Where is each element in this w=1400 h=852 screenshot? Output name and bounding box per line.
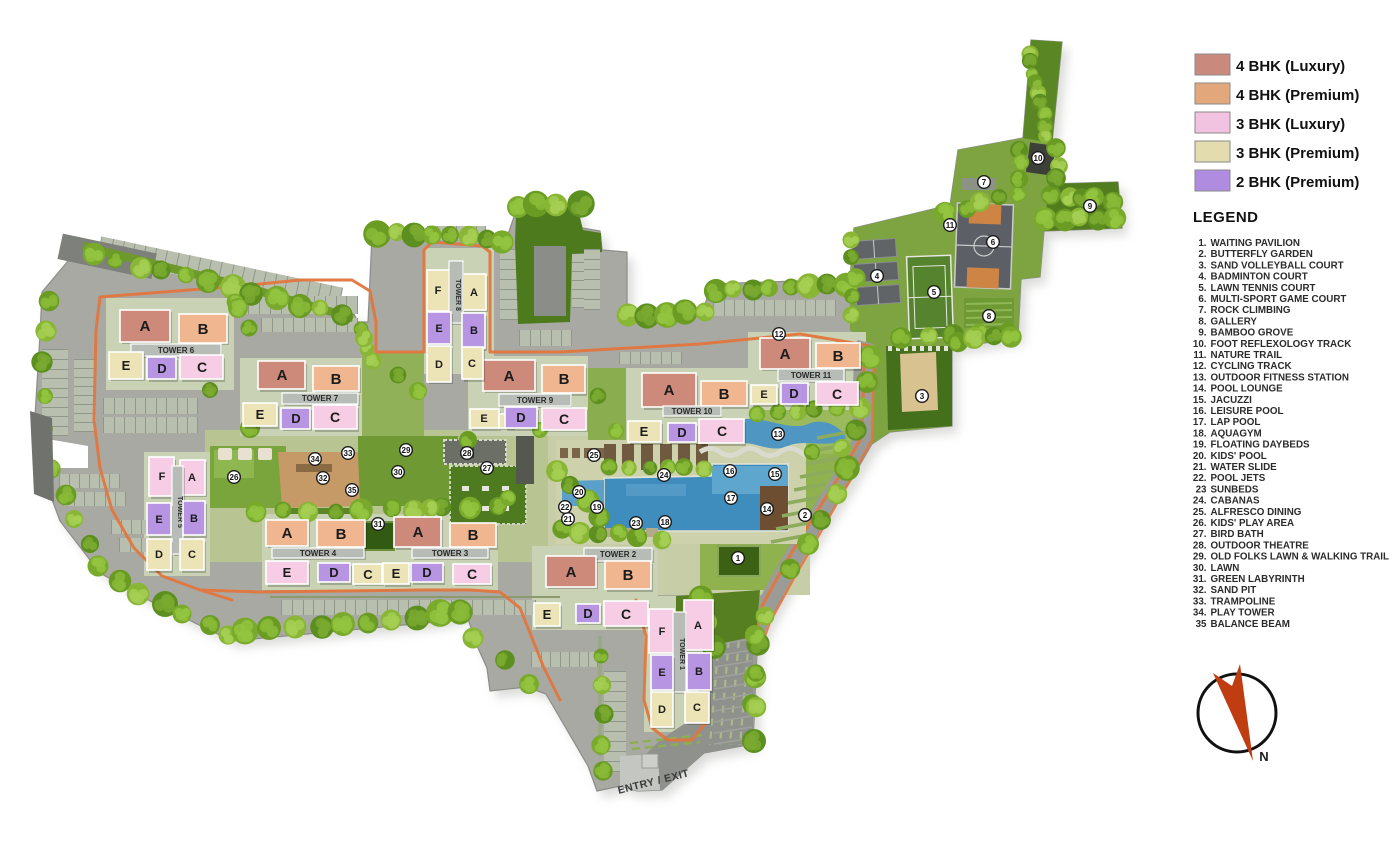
svg-text:D: D xyxy=(516,410,525,425)
svg-text:23: 23 xyxy=(632,519,641,528)
svg-text:B: B xyxy=(470,325,478,337)
svg-text:D: D xyxy=(329,565,338,580)
svg-text:PLAY TOWER: PLAY TOWER xyxy=(1211,608,1275,619)
svg-text:7: 7 xyxy=(982,178,987,187)
svg-text:A: A xyxy=(780,346,791,363)
svg-text:22: 22 xyxy=(561,503,570,512)
svg-text:8: 8 xyxy=(987,312,992,321)
svg-text:E: E xyxy=(256,407,265,422)
svg-text:B: B xyxy=(190,513,198,525)
svg-text:TOWER 3: TOWER 3 xyxy=(432,549,469,558)
svg-text:24.: 24. xyxy=(1193,496,1207,507)
svg-text:NATURE TRAIL: NATURE TRAIL xyxy=(1211,350,1283,361)
svg-text:B: B xyxy=(198,321,209,338)
svg-text:20.: 20. xyxy=(1193,451,1207,462)
svg-text:31.: 31. xyxy=(1193,574,1207,585)
svg-text:3 BHK (Premium): 3 BHK (Premium) xyxy=(1236,145,1359,162)
svg-text:24: 24 xyxy=(660,471,669,480)
svg-text:TRAMPOLINE: TRAMPOLINE xyxy=(1211,596,1276,607)
svg-text:1.: 1. xyxy=(1198,238,1206,249)
svg-text:E: E xyxy=(640,424,649,439)
svg-text:3 BHK (Luxury): 3 BHK (Luxury) xyxy=(1236,116,1345,133)
svg-text:SAND PIT: SAND PIT xyxy=(1211,585,1257,596)
svg-text:A: A xyxy=(566,564,577,581)
svg-text:34.: 34. xyxy=(1193,608,1207,619)
svg-text:9.: 9. xyxy=(1198,328,1206,339)
svg-text:KIDS' POOL: KIDS' POOL xyxy=(1211,451,1267,462)
svg-text:POOL LOUNGE: POOL LOUNGE xyxy=(1211,384,1284,395)
svg-text:25: 25 xyxy=(590,451,599,460)
svg-text:E: E xyxy=(155,514,162,526)
svg-text:32: 32 xyxy=(319,474,328,483)
svg-text:33: 33 xyxy=(344,449,353,458)
svg-text:E: E xyxy=(122,358,131,373)
svg-text:B: B xyxy=(468,527,479,544)
svg-text:12: 12 xyxy=(775,330,784,339)
svg-text:2.: 2. xyxy=(1198,249,1206,260)
svg-text:ALFRESCO DINING: ALFRESCO DINING xyxy=(1211,507,1302,518)
svg-text:21.: 21. xyxy=(1193,462,1207,473)
svg-text:CABANAS: CABANAS xyxy=(1211,496,1260,507)
svg-text:20: 20 xyxy=(575,488,584,497)
svg-text:8.: 8. xyxy=(1198,316,1206,327)
svg-text:E: E xyxy=(392,566,401,581)
svg-text:TOWER 1: TOWER 1 xyxy=(678,638,685,670)
svg-text:9: 9 xyxy=(1088,202,1093,211)
svg-text:A: A xyxy=(470,287,478,299)
svg-text:D: D xyxy=(789,386,798,401)
svg-text:15.: 15. xyxy=(1193,395,1207,406)
svg-text:11.: 11. xyxy=(1193,350,1206,361)
svg-text:13: 13 xyxy=(774,430,783,439)
svg-text:D: D xyxy=(677,425,686,440)
svg-text:D: D xyxy=(157,361,166,376)
svg-text:35: 35 xyxy=(348,486,357,495)
svg-text:ROCK CLIMBING: ROCK CLIMBING xyxy=(1211,305,1291,316)
svg-text:D: D xyxy=(155,549,163,561)
svg-text:23: 23 xyxy=(1196,484,1207,495)
svg-text:E: E xyxy=(283,565,292,580)
svg-text:F: F xyxy=(659,626,666,638)
svg-text:C: C xyxy=(717,423,727,439)
svg-text:MULTI-SPORT GAME COURT: MULTI-SPORT GAME COURT xyxy=(1211,294,1347,305)
svg-text:C: C xyxy=(832,386,842,402)
svg-text:OUTDOOR THEATRE: OUTDOOR THEATRE xyxy=(1211,540,1310,551)
svg-text:34: 34 xyxy=(311,455,320,464)
svg-text:TOWER 10: TOWER 10 xyxy=(672,407,713,416)
svg-text:TOWER 7: TOWER 7 xyxy=(302,394,339,403)
svg-text:28.: 28. xyxy=(1193,540,1207,551)
svg-text:GREEN LABYRINTH: GREEN LABYRINTH xyxy=(1211,574,1305,585)
svg-text:33.: 33. xyxy=(1193,596,1207,607)
svg-text:A: A xyxy=(188,472,196,484)
svg-text:12.: 12. xyxy=(1193,361,1207,372)
svg-text:D: D xyxy=(658,704,666,716)
svg-text:B: B xyxy=(559,371,570,388)
svg-text:11: 11 xyxy=(946,221,955,230)
svg-text:D: D xyxy=(422,565,431,580)
svg-text:KIDS' PLAY AREA: KIDS' PLAY AREA xyxy=(1211,518,1295,529)
svg-text:C: C xyxy=(693,702,701,714)
svg-text:WATER SLIDE: WATER SLIDE xyxy=(1211,462,1278,473)
svg-text:BIRD BATH: BIRD BATH xyxy=(1211,529,1264,540)
svg-text:F: F xyxy=(159,471,166,483)
svg-text:N: N xyxy=(1259,749,1268,764)
svg-text:SAND VOLLEYBALL COURT: SAND VOLLEYBALL COURT xyxy=(1211,260,1344,271)
svg-text:B: B xyxy=(833,348,844,365)
svg-text:1: 1 xyxy=(736,554,741,563)
svg-text:LAWN: LAWN xyxy=(1211,563,1240,574)
svg-text:19.: 19. xyxy=(1193,440,1207,451)
svg-text:30.: 30. xyxy=(1193,563,1207,574)
svg-text:FLOATING DAYBEDS: FLOATING DAYBEDS xyxy=(1211,440,1311,451)
svg-text:A: A xyxy=(277,367,288,384)
svg-text:C: C xyxy=(468,358,476,370)
svg-text:15: 15 xyxy=(771,470,780,479)
svg-text:E: E xyxy=(760,389,767,401)
svg-text:OUTDOOR FITNESS STATION: OUTDOOR FITNESS STATION xyxy=(1211,372,1349,383)
svg-text:16.: 16. xyxy=(1193,406,1207,417)
svg-text:18: 18 xyxy=(661,518,670,527)
svg-text:TOWER 11: TOWER 11 xyxy=(791,371,832,380)
svg-text:B: B xyxy=(719,386,730,403)
svg-text:17: 17 xyxy=(727,494,736,503)
svg-text:C: C xyxy=(363,567,373,582)
svg-text:25.: 25. xyxy=(1193,507,1207,518)
svg-text:17.: 17. xyxy=(1193,417,1207,428)
svg-text:C: C xyxy=(197,359,207,375)
svg-text:21: 21 xyxy=(564,515,573,524)
svg-text:D: D xyxy=(583,606,592,621)
svg-text:4: 4 xyxy=(875,272,880,281)
svg-text:E: E xyxy=(435,323,442,335)
svg-text:C: C xyxy=(621,606,631,622)
svg-text:14: 14 xyxy=(763,505,772,514)
svg-text:C: C xyxy=(188,549,196,561)
svg-text:A: A xyxy=(413,524,424,541)
svg-text:4.: 4. xyxy=(1198,272,1206,283)
svg-text:OLD FOLKS LAWN & WALKING TRAIL: OLD FOLKS LAWN & WALKING TRAIL xyxy=(1211,552,1390,563)
svg-text:BALANCE BEAM: BALANCE BEAM xyxy=(1211,619,1290,630)
svg-text:POOL JETS: POOL JETS xyxy=(1211,473,1266,484)
svg-text:E: E xyxy=(480,413,487,425)
svg-text:A: A xyxy=(140,318,151,335)
svg-text:29.: 29. xyxy=(1193,552,1207,563)
svg-text:A: A xyxy=(282,525,293,542)
svg-text:C: C xyxy=(559,411,569,427)
svg-text:3.: 3. xyxy=(1198,260,1206,271)
svg-text:JACUZZI: JACUZZI xyxy=(1211,395,1253,406)
svg-text:TOWER 8: TOWER 8 xyxy=(454,279,461,311)
svg-text:4 BHK (Premium): 4 BHK (Premium) xyxy=(1236,87,1359,104)
svg-text:LEISURE POOL: LEISURE POOL xyxy=(1211,406,1284,417)
svg-text:2: 2 xyxy=(803,511,808,520)
svg-text:TOWER 5: TOWER 5 xyxy=(176,496,183,528)
svg-text:26.: 26. xyxy=(1193,518,1207,529)
svg-text:FOOT REFLEXOLOGY TRACK: FOOT REFLEXOLOGY TRACK xyxy=(1211,339,1352,350)
svg-text:16: 16 xyxy=(726,467,735,476)
svg-text:A: A xyxy=(504,368,515,385)
svg-text:4 BHK (Luxury): 4 BHK (Luxury) xyxy=(1236,58,1345,75)
svg-text:C: C xyxy=(330,409,340,425)
svg-text:AQUAGYM: AQUAGYM xyxy=(1211,428,1262,439)
svg-text:C: C xyxy=(467,566,477,582)
svg-text:14.: 14. xyxy=(1193,384,1207,395)
svg-text:B: B xyxy=(331,371,342,388)
svg-text:TOWER 2: TOWER 2 xyxy=(600,550,637,559)
svg-text:TOWER 9: TOWER 9 xyxy=(517,396,554,405)
svg-text:32.: 32. xyxy=(1193,585,1207,596)
svg-text:10: 10 xyxy=(1034,154,1043,163)
svg-text:2 BHK (Premium): 2 BHK (Premium) xyxy=(1236,174,1359,191)
svg-text:27: 27 xyxy=(483,464,492,473)
svg-text:27.: 27. xyxy=(1193,529,1207,540)
svg-text:LEGEND: LEGEND xyxy=(1193,209,1259,226)
svg-text:31: 31 xyxy=(374,520,383,529)
svg-text:TOWER 6: TOWER 6 xyxy=(158,346,195,355)
svg-text:22.: 22. xyxy=(1193,473,1207,484)
svg-text:28: 28 xyxy=(463,449,472,458)
svg-text:LAP POOL: LAP POOL xyxy=(1211,417,1261,428)
svg-text:3: 3 xyxy=(920,392,925,401)
svg-text:CYCLING TRACK: CYCLING TRACK xyxy=(1211,361,1292,372)
svg-text:F: F xyxy=(435,285,442,297)
svg-text:BADMINTON COURT: BADMINTON COURT xyxy=(1211,272,1308,283)
svg-text:BAMBOO GROVE: BAMBOO GROVE xyxy=(1211,328,1294,339)
svg-text:TOWER 4: TOWER 4 xyxy=(300,549,337,558)
svg-text:30: 30 xyxy=(394,468,403,477)
svg-text:B: B xyxy=(336,526,347,543)
svg-text:D: D xyxy=(435,359,443,371)
svg-text:E: E xyxy=(658,667,665,679)
svg-text:35: 35 xyxy=(1196,619,1207,630)
svg-text:5.: 5. xyxy=(1198,283,1206,294)
svg-text:BUTTERFLY GARDEN: BUTTERFLY GARDEN xyxy=(1211,249,1313,260)
svg-text:WAITING PAVILION: WAITING PAVILION xyxy=(1211,238,1300,249)
svg-text:13.: 13. xyxy=(1193,372,1207,383)
svg-text:18.: 18. xyxy=(1193,428,1207,439)
svg-text:A: A xyxy=(694,620,702,632)
svg-text:7.: 7. xyxy=(1198,305,1206,316)
svg-text:10.: 10. xyxy=(1193,339,1207,350)
svg-text:26: 26 xyxy=(230,473,239,482)
svg-text:GALLERY: GALLERY xyxy=(1211,316,1258,327)
svg-text:D: D xyxy=(291,411,300,426)
svg-text:B: B xyxy=(695,666,703,678)
svg-text:E: E xyxy=(543,607,552,622)
svg-text:SUNBEDS: SUNBEDS xyxy=(1211,484,1259,495)
svg-text:19: 19 xyxy=(593,503,602,512)
svg-text:5: 5 xyxy=(932,288,937,297)
svg-text:29: 29 xyxy=(402,446,411,455)
svg-text:B: B xyxy=(623,567,634,584)
svg-text:6.: 6. xyxy=(1198,294,1206,305)
svg-text:6: 6 xyxy=(991,238,996,247)
svg-text:A: A xyxy=(664,382,675,399)
svg-text:LAWN TENNIS COURT: LAWN TENNIS COURT xyxy=(1211,283,1316,294)
